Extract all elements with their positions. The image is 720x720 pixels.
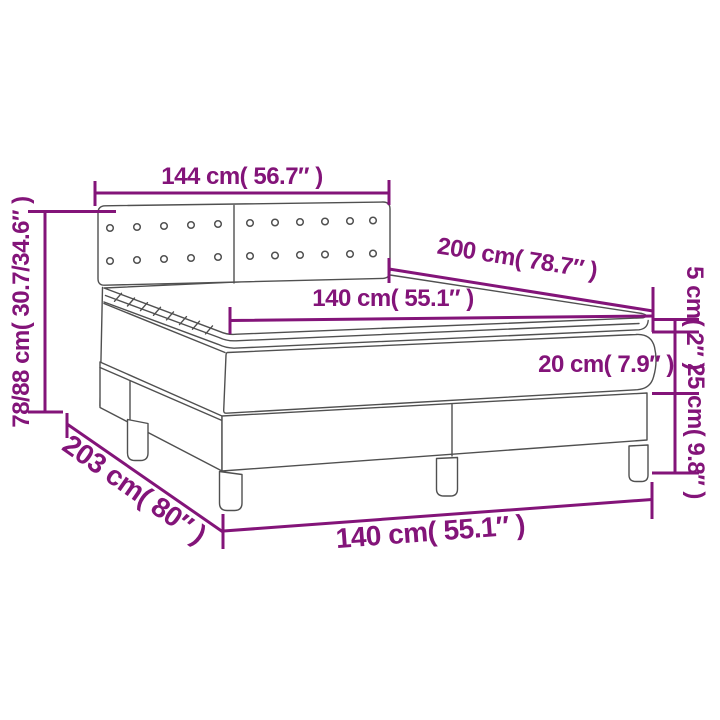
headboard-button xyxy=(370,217,377,224)
headboard-button xyxy=(188,222,195,229)
dim-bed-length-label: 200 cm( 78.7″ ) xyxy=(435,233,599,285)
headboard-button xyxy=(215,221,222,228)
dim-headboard-width: 144 cm( 56.7″ ) xyxy=(95,163,389,206)
base-left-face xyxy=(100,362,222,471)
headboard-button xyxy=(247,220,254,227)
bed-leg-front-middle xyxy=(437,458,458,497)
headboard-button xyxy=(322,218,329,225)
headboard-button xyxy=(107,225,114,232)
headboard-button xyxy=(247,253,254,260)
dim-mattress-height: 20 cm( 7.9″ ) xyxy=(538,351,674,378)
dim-right-heights: 5 cm( 2″ ) 25 cm( 9.8″ ) xyxy=(652,266,709,499)
bed-leg-front-right xyxy=(629,445,648,482)
dim-mattress-width-label: 140 cm( 55.1″ ) xyxy=(312,285,473,312)
headboard-button xyxy=(161,256,168,263)
dim-base-height-label: 25 cm( 9.8″ ) xyxy=(682,363,709,499)
headboard-button xyxy=(134,257,141,264)
headboard-button xyxy=(272,219,279,226)
bed-leg-side xyxy=(128,420,149,461)
bed-leg-front-left xyxy=(220,472,243,511)
dim-base-width-label: 140 cm( 55.1″ ) xyxy=(335,509,526,554)
headboard-button xyxy=(161,223,168,230)
headboard-button xyxy=(370,250,377,257)
headboard-button xyxy=(322,251,329,258)
headboard-button xyxy=(347,251,354,258)
diagram-svg: 144 cm( 56.7″ ) 78/88 cm( 30.7/34.6″ ) 2… xyxy=(0,0,720,720)
headboard-button xyxy=(107,258,114,265)
headboard xyxy=(98,202,390,285)
dim-headboard-width-label: 144 cm( 56.7″ ) xyxy=(161,163,322,190)
bed-dimension-diagram: 144 cm( 56.7″ ) 78/88 cm( 30.7/34.6″ ) 2… xyxy=(0,0,720,720)
dim-topper-height-label: 5 cm( 2″ ) xyxy=(681,266,708,370)
headboard-button xyxy=(297,252,304,259)
headboard-button xyxy=(215,254,222,261)
headboard-button xyxy=(272,252,279,259)
headboard-button xyxy=(297,219,304,226)
dim-overall-height-label: 78/88 cm( 30.7/34.6″ ) xyxy=(8,196,35,427)
headboard-button xyxy=(347,218,354,225)
headboard-button xyxy=(134,224,141,231)
headboard-button xyxy=(188,255,195,262)
dim-mattress-height-label: 20 cm( 7.9″ ) xyxy=(538,351,674,378)
